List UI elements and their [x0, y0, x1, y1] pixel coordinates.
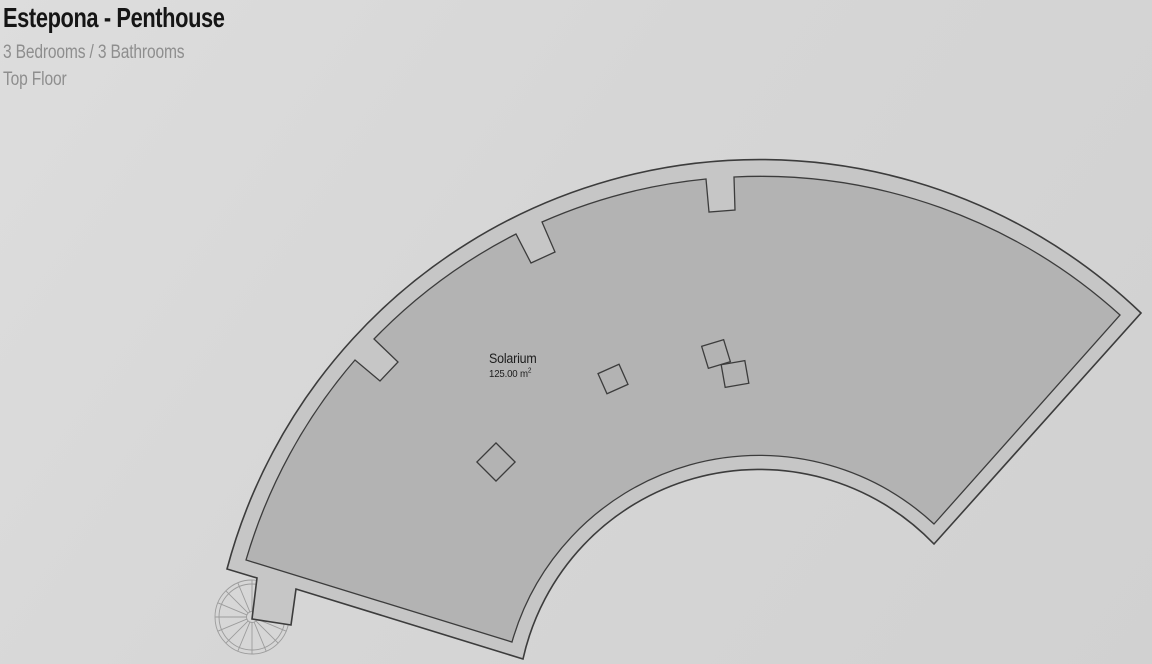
header: Estepona - Penthouse 3 Bedrooms / 3 Bath…: [3, 2, 287, 34]
room-area-value: 125.00 m: [489, 368, 528, 380]
page-title: Estepona - Penthouse: [3, 2, 225, 34]
room-label: Solarium 125.00 m2: [489, 351, 541, 380]
page-subtitle: 3 Bedrooms / 3 Bathrooms: [3, 42, 184, 64]
solarium-floor-area: [246, 176, 1120, 642]
floorplan-drawing: [0, 0, 1152, 664]
floorplan-page: Estepona - Penthouse 3 Bedrooms / 3 Bath…: [0, 0, 1152, 664]
room-name: Solarium: [489, 351, 537, 366]
room-area-superscript: 2: [528, 368, 531, 375]
floor-label: Top Floor: [3, 69, 66, 91]
room-area: 125.00 m2: [489, 368, 537, 380]
